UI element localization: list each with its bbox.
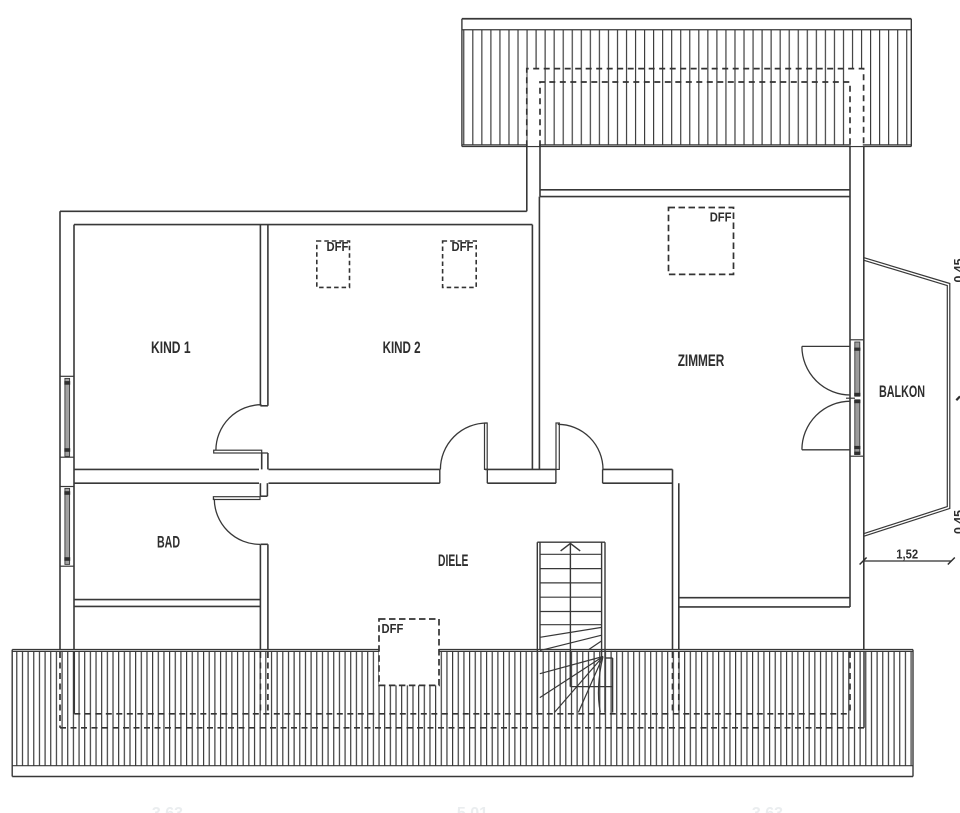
- svg-text:BALKON: BALKON: [879, 383, 925, 401]
- svg-text:ZIMMER: ZIMMER: [678, 352, 725, 370]
- svg-text:DFF: DFF: [327, 239, 349, 254]
- svg-text:KIND 1: KIND 1: [151, 339, 191, 357]
- svg-text:DFF: DFF: [452, 239, 474, 254]
- svg-text:DFF: DFF: [710, 210, 732, 225]
- svg-text:BAD: BAD: [157, 533, 180, 551]
- svg-text:DFF: DFF: [382, 621, 404, 636]
- svg-text:3,63: 3,63: [752, 805, 783, 813]
- svg-text:0,45: 0,45: [952, 258, 960, 282]
- svg-text:1,52: 1,52: [896, 548, 918, 562]
- svg-text:KIND 2: KIND 2: [383, 339, 421, 357]
- svg-text:0,45: 0,45: [952, 510, 960, 534]
- svg-text:DIELE: DIELE: [438, 552, 468, 570]
- svg-text:5,01: 5,01: [457, 805, 488, 813]
- svg-text:3,63: 3,63: [152, 805, 183, 813]
